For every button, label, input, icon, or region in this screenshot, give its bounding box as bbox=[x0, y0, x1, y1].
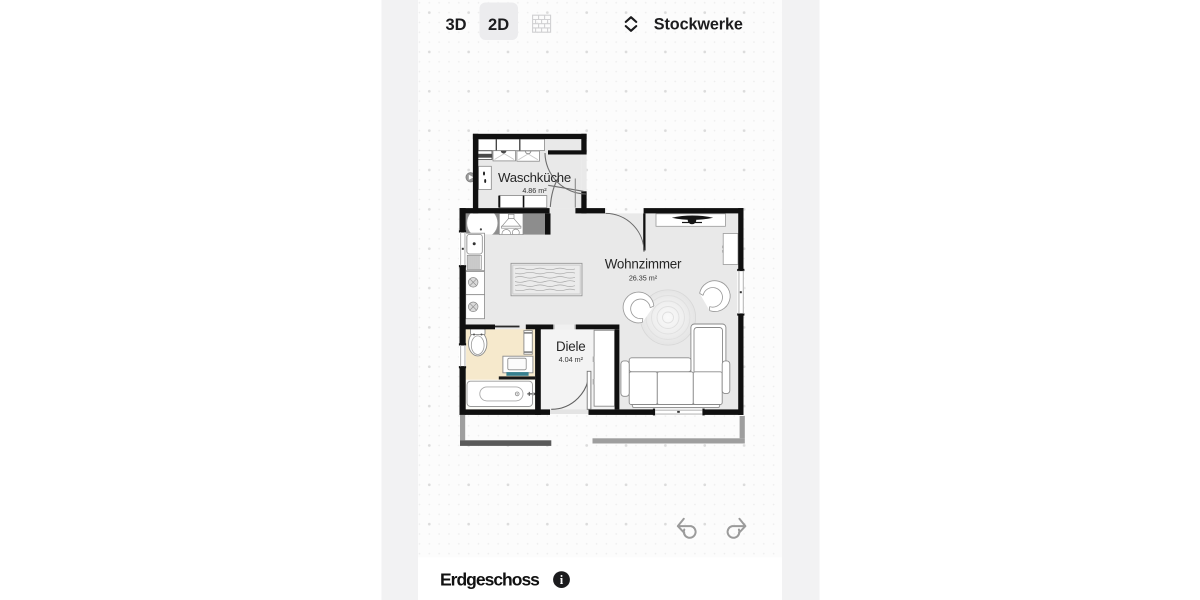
svg-text:4.86 m²: 4.86 m² bbox=[522, 186, 547, 195]
svg-text:Diele: Diele bbox=[556, 339, 586, 354]
svg-text:4.04 m²: 4.04 m² bbox=[559, 355, 584, 364]
svg-text:i: i bbox=[560, 573, 564, 587]
svg-text:2D: 2D bbox=[488, 16, 509, 34]
svg-text:Erdgeschoss: Erdgeschoss bbox=[440, 569, 540, 589]
svg-text:26.35 m²: 26.35 m² bbox=[629, 273, 658, 282]
svg-text:Wohnzimmer: Wohnzimmer bbox=[605, 256, 682, 271]
svg-text:Stockwerke: Stockwerke bbox=[654, 16, 743, 34]
svg-text:Waschküche: Waschküche bbox=[498, 170, 571, 185]
svg-text:3D: 3D bbox=[445, 16, 466, 34]
